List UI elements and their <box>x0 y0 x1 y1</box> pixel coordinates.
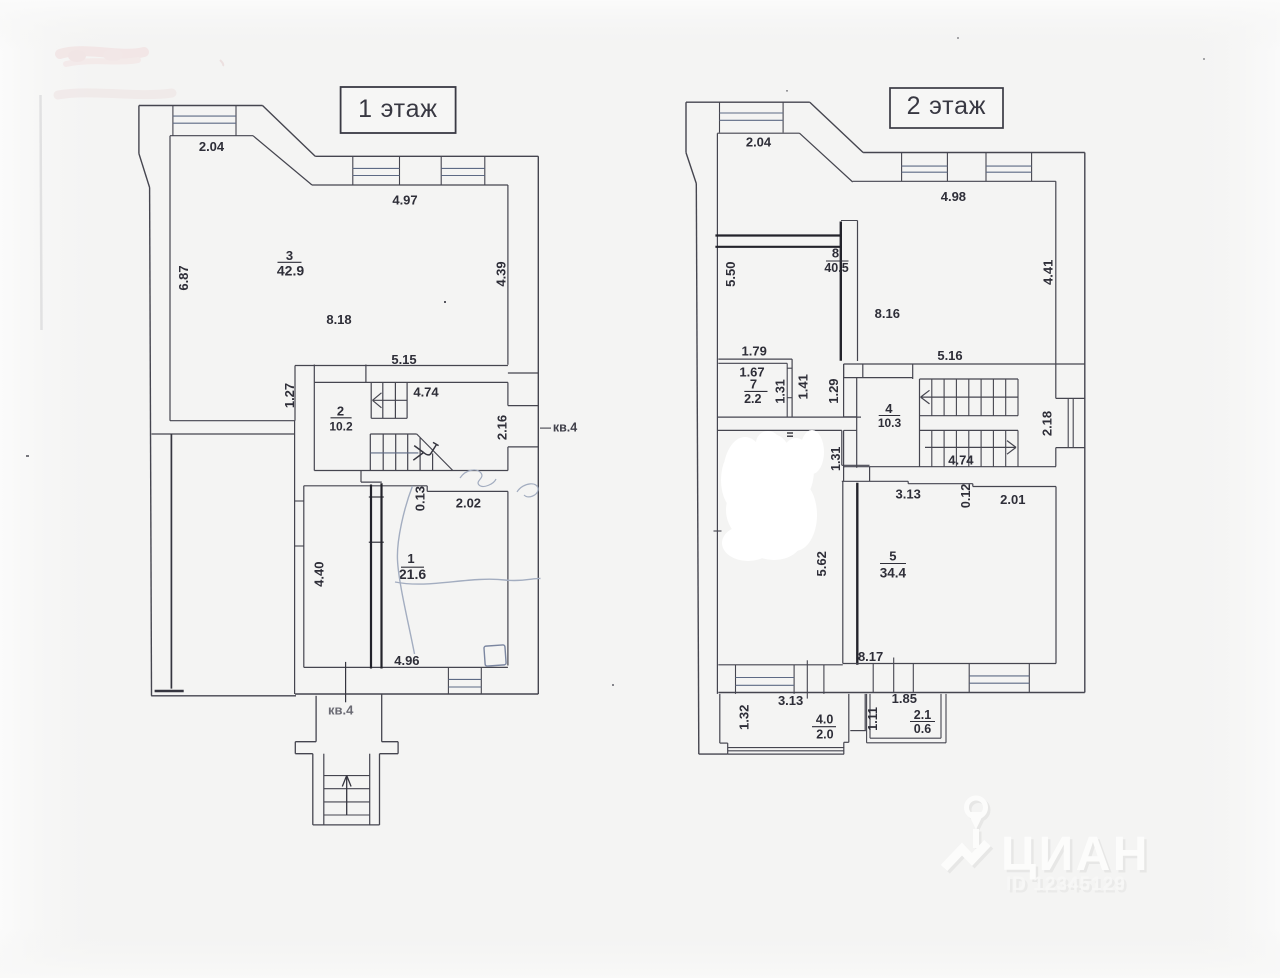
svg-text:1.31: 1.31 <box>829 447 843 471</box>
svg-text:8.16: 8.16 <box>875 306 900 321</box>
svg-text:1.29: 1.29 <box>826 378 841 403</box>
svg-text:4.0: 4.0 <box>816 713 833 727</box>
svg-text:10.3: 10.3 <box>878 416 902 430</box>
svg-text:4.98: 4.98 <box>941 189 966 204</box>
svg-text:2.04: 2.04 <box>199 139 225 154</box>
svg-text:2.02: 2.02 <box>456 496 481 511</box>
svg-text:8.18: 8.18 <box>326 312 351 327</box>
svg-text:4.39: 4.39 <box>493 261 508 286</box>
svg-text:3: 3 <box>286 248 293 263</box>
svg-text:21.6: 21.6 <box>399 566 426 582</box>
svg-text:5.16: 5.16 <box>937 348 962 363</box>
svg-text:1.79: 1.79 <box>742 344 767 359</box>
svg-text:0.12: 0.12 <box>959 484 973 508</box>
svg-text:2 этаж: 2 этаж <box>907 92 987 120</box>
svg-text:0.13: 0.13 <box>412 486 427 511</box>
svg-text:1.31: 1.31 <box>774 379 788 403</box>
svg-text:1.27: 1.27 <box>282 383 297 408</box>
svg-text:2.01: 2.01 <box>1000 492 1025 507</box>
svg-text:4.74: 4.74 <box>948 452 974 467</box>
svg-text:2.18: 2.18 <box>1039 411 1054 436</box>
svg-text:4.97: 4.97 <box>392 193 417 208</box>
svg-text:4: 4 <box>885 401 893 416</box>
svg-text:5.15: 5.15 <box>391 352 416 367</box>
svg-text:1.41: 1.41 <box>796 374 811 399</box>
svg-text:ID 12345129: ID 12345129 <box>1006 874 1126 895</box>
svg-text:4.40: 4.40 <box>312 562 327 587</box>
svg-text:5: 5 <box>889 548 896 563</box>
svg-text:7: 7 <box>750 377 757 392</box>
svg-text:1 этаж: 1 этаж <box>358 95 438 123</box>
svg-text:2.0: 2.0 <box>816 727 833 741</box>
svg-text:8.17: 8.17 <box>858 649 883 664</box>
svg-text:1: 1 <box>407 551 414 566</box>
svg-text:кв.4: кв.4 <box>328 703 354 718</box>
svg-text:40.5: 40.5 <box>824 261 848 275</box>
svg-text:2.2: 2.2 <box>744 392 761 406</box>
svg-text:4.96: 4.96 <box>394 653 419 668</box>
svg-text:2: 2 <box>337 404 344 419</box>
svg-text:4.74: 4.74 <box>413 385 439 400</box>
svg-text:3.13: 3.13 <box>896 487 921 502</box>
svg-text:1.85: 1.85 <box>892 691 917 706</box>
svg-text:34.4: 34.4 <box>880 565 907 580</box>
svg-text:0.6: 0.6 <box>914 722 931 736</box>
svg-text:5.62: 5.62 <box>814 551 829 576</box>
svg-text:3.13: 3.13 <box>778 693 803 708</box>
svg-text:6.87: 6.87 <box>176 265 191 290</box>
svg-text:1.11: 1.11 <box>866 707 880 731</box>
svg-text:5.50: 5.50 <box>723 262 738 287</box>
svg-text:10.2: 10.2 <box>329 420 353 434</box>
svg-text:4.41: 4.41 <box>1040 260 1055 285</box>
svg-text:2.04: 2.04 <box>746 135 772 150</box>
svg-text:2.1: 2.1 <box>914 708 931 722</box>
svg-text:42.9: 42.9 <box>277 263 304 279</box>
svg-text:1.32: 1.32 <box>737 705 752 730</box>
svg-text:2.16: 2.16 <box>495 415 510 440</box>
svg-text:кв.4: кв.4 <box>553 421 577 435</box>
svg-text:8: 8 <box>832 246 839 261</box>
